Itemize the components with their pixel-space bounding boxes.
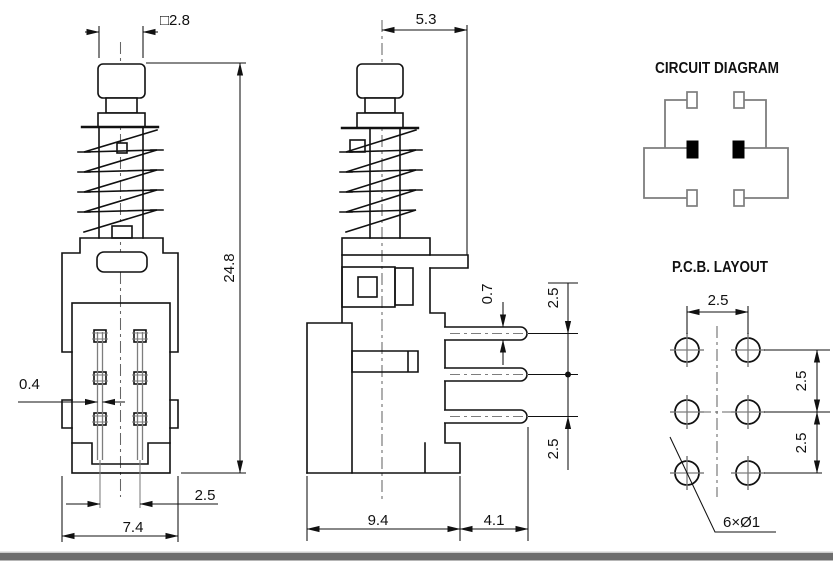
dim-label-hole-pitch-x: 2.5 (708, 292, 729, 309)
actuator-block (342, 267, 395, 307)
mounting-tab (430, 255, 468, 268)
circuit-diagram-title: CIRCUIT DIAGRAM (655, 60, 779, 77)
dim-label-pin-width: 0.4 (19, 376, 40, 393)
bracket-plate (307, 255, 352, 473)
dim-height: 24.8 (146, 63, 246, 473)
footer-bar (0, 552, 833, 561)
dim-label-pin-pitch: 2.5 (195, 487, 216, 504)
circuit-terminals (687, 92, 744, 206)
dim-hole-pitch-y: 2.5 2.5 (764, 350, 830, 473)
common-terminal-left (687, 141, 698, 158)
dim-body-depth: 9.4 (307, 476, 460, 541)
side-view: 5.3 0.7 2.5 2.5 9.4 4.1 (307, 11, 578, 541)
chain-dim-dot (565, 372, 571, 378)
dim-label-pin-thickness: 0.7 (479, 284, 496, 305)
dim-pin-length: 4.1 (460, 427, 528, 541)
pcb-layout-title: P.C.B. LAYOUT (672, 259, 768, 276)
dim-pin-spacing: 2.5 2.5 (528, 283, 578, 470)
hole-note-label: 6×Ø1 (723, 514, 760, 531)
dim-label-pin-pitch-upper: 2.5 (545, 288, 562, 309)
dim-label-pin-length: 4.1 (484, 512, 505, 529)
technical-drawing-canvas: □2.8 24.8 0.4 2.5 7.4 (0, 0, 833, 567)
circuit-wire-left (644, 100, 687, 198)
latch-slot (352, 351, 418, 372)
shaft-foot (112, 226, 132, 238)
dim-label-height: 24.8 (221, 253, 238, 282)
upper-housing-side (342, 238, 430, 255)
dim-pin-thickness: 0.7 (479, 284, 503, 365)
dim-label-cap-width: □2.8 (160, 12, 190, 29)
plunger-neck (106, 98, 137, 113)
dim-plunger-offset: 5.3 (382, 11, 467, 255)
dim-label-hole-pitch-y-lower: 2.5 (793, 433, 810, 454)
side-pins (445, 327, 536, 423)
drawing-sheet: □2.8 24.8 0.4 2.5 7.4 (0, 0, 833, 567)
dim-cap-width: □2.8 (85, 12, 190, 58)
dim-pin-pitch: 2.5 (66, 487, 218, 504)
dim-label-body-width: 7.4 (123, 519, 144, 536)
plunger-cap (98, 64, 145, 98)
plunger-stem (98, 113, 145, 127)
housing-slot (97, 252, 147, 272)
dim-label-pin-pitch-lower: 2.5 (545, 439, 562, 460)
circuit-diagram: CIRCUIT DIAGRAM (644, 60, 788, 206)
circuit-wire-right (744, 100, 788, 198)
plunger-cap-side (357, 64, 403, 98)
housing-side-outline (307, 268, 460, 473)
dim-label-body-depth: 9.4 (368, 512, 389, 529)
pcb-layout: P.C.B. LAYOUT 2.5 2.5 2.5 (670, 259, 830, 532)
common-terminal-right (733, 141, 744, 158)
front-view: □2.8 24.8 0.4 2.5 7.4 (18, 12, 246, 542)
dim-label-hole-pitch-y-upper: 2.5 (793, 371, 810, 392)
dim-label-plunger-offset: 5.3 (416, 11, 437, 28)
